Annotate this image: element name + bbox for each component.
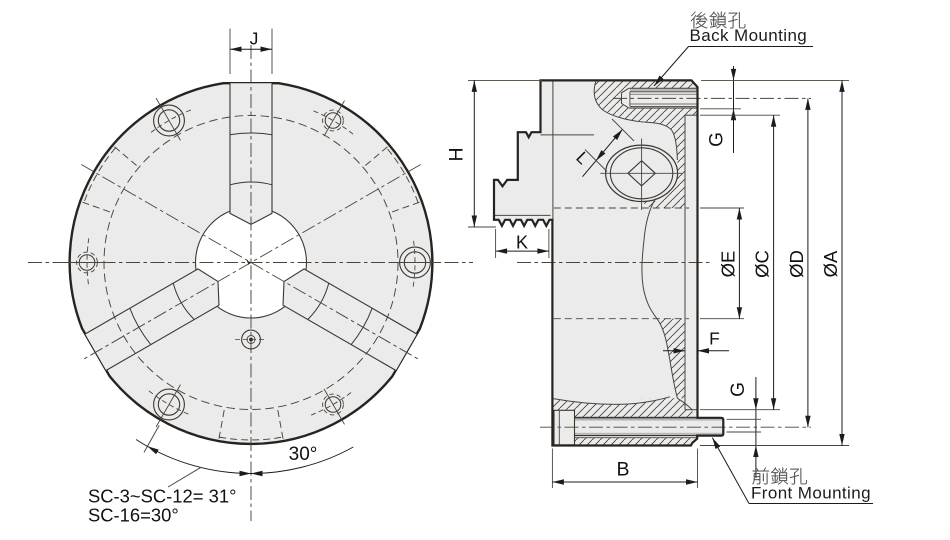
- svg-text:H: H: [446, 147, 468, 161]
- svg-text:G: G: [728, 382, 749, 397]
- svg-text:B: B: [616, 459, 629, 481]
- svg-text:SC-16=30°: SC-16=30°: [88, 505, 179, 526]
- svg-text:F: F: [709, 329, 720, 349]
- svg-text:J: J: [250, 29, 259, 49]
- svg-text:Back Mounting: Back Mounting: [690, 26, 808, 45]
- svg-text:ØD: ØD: [786, 250, 807, 278]
- svg-text:K: K: [516, 233, 528, 253]
- svg-text:Front Mounting: Front Mounting: [751, 484, 871, 503]
- svg-text:G: G: [707, 132, 728, 147]
- svg-text:ØA: ØA: [820, 250, 841, 277]
- svg-text:ØE: ØE: [717, 251, 738, 278]
- svg-text:SC-3~SC-12= 31°: SC-3~SC-12= 31°: [88, 486, 236, 507]
- svg-text:30°: 30°: [289, 444, 318, 465]
- svg-text:ØC: ØC: [752, 250, 773, 278]
